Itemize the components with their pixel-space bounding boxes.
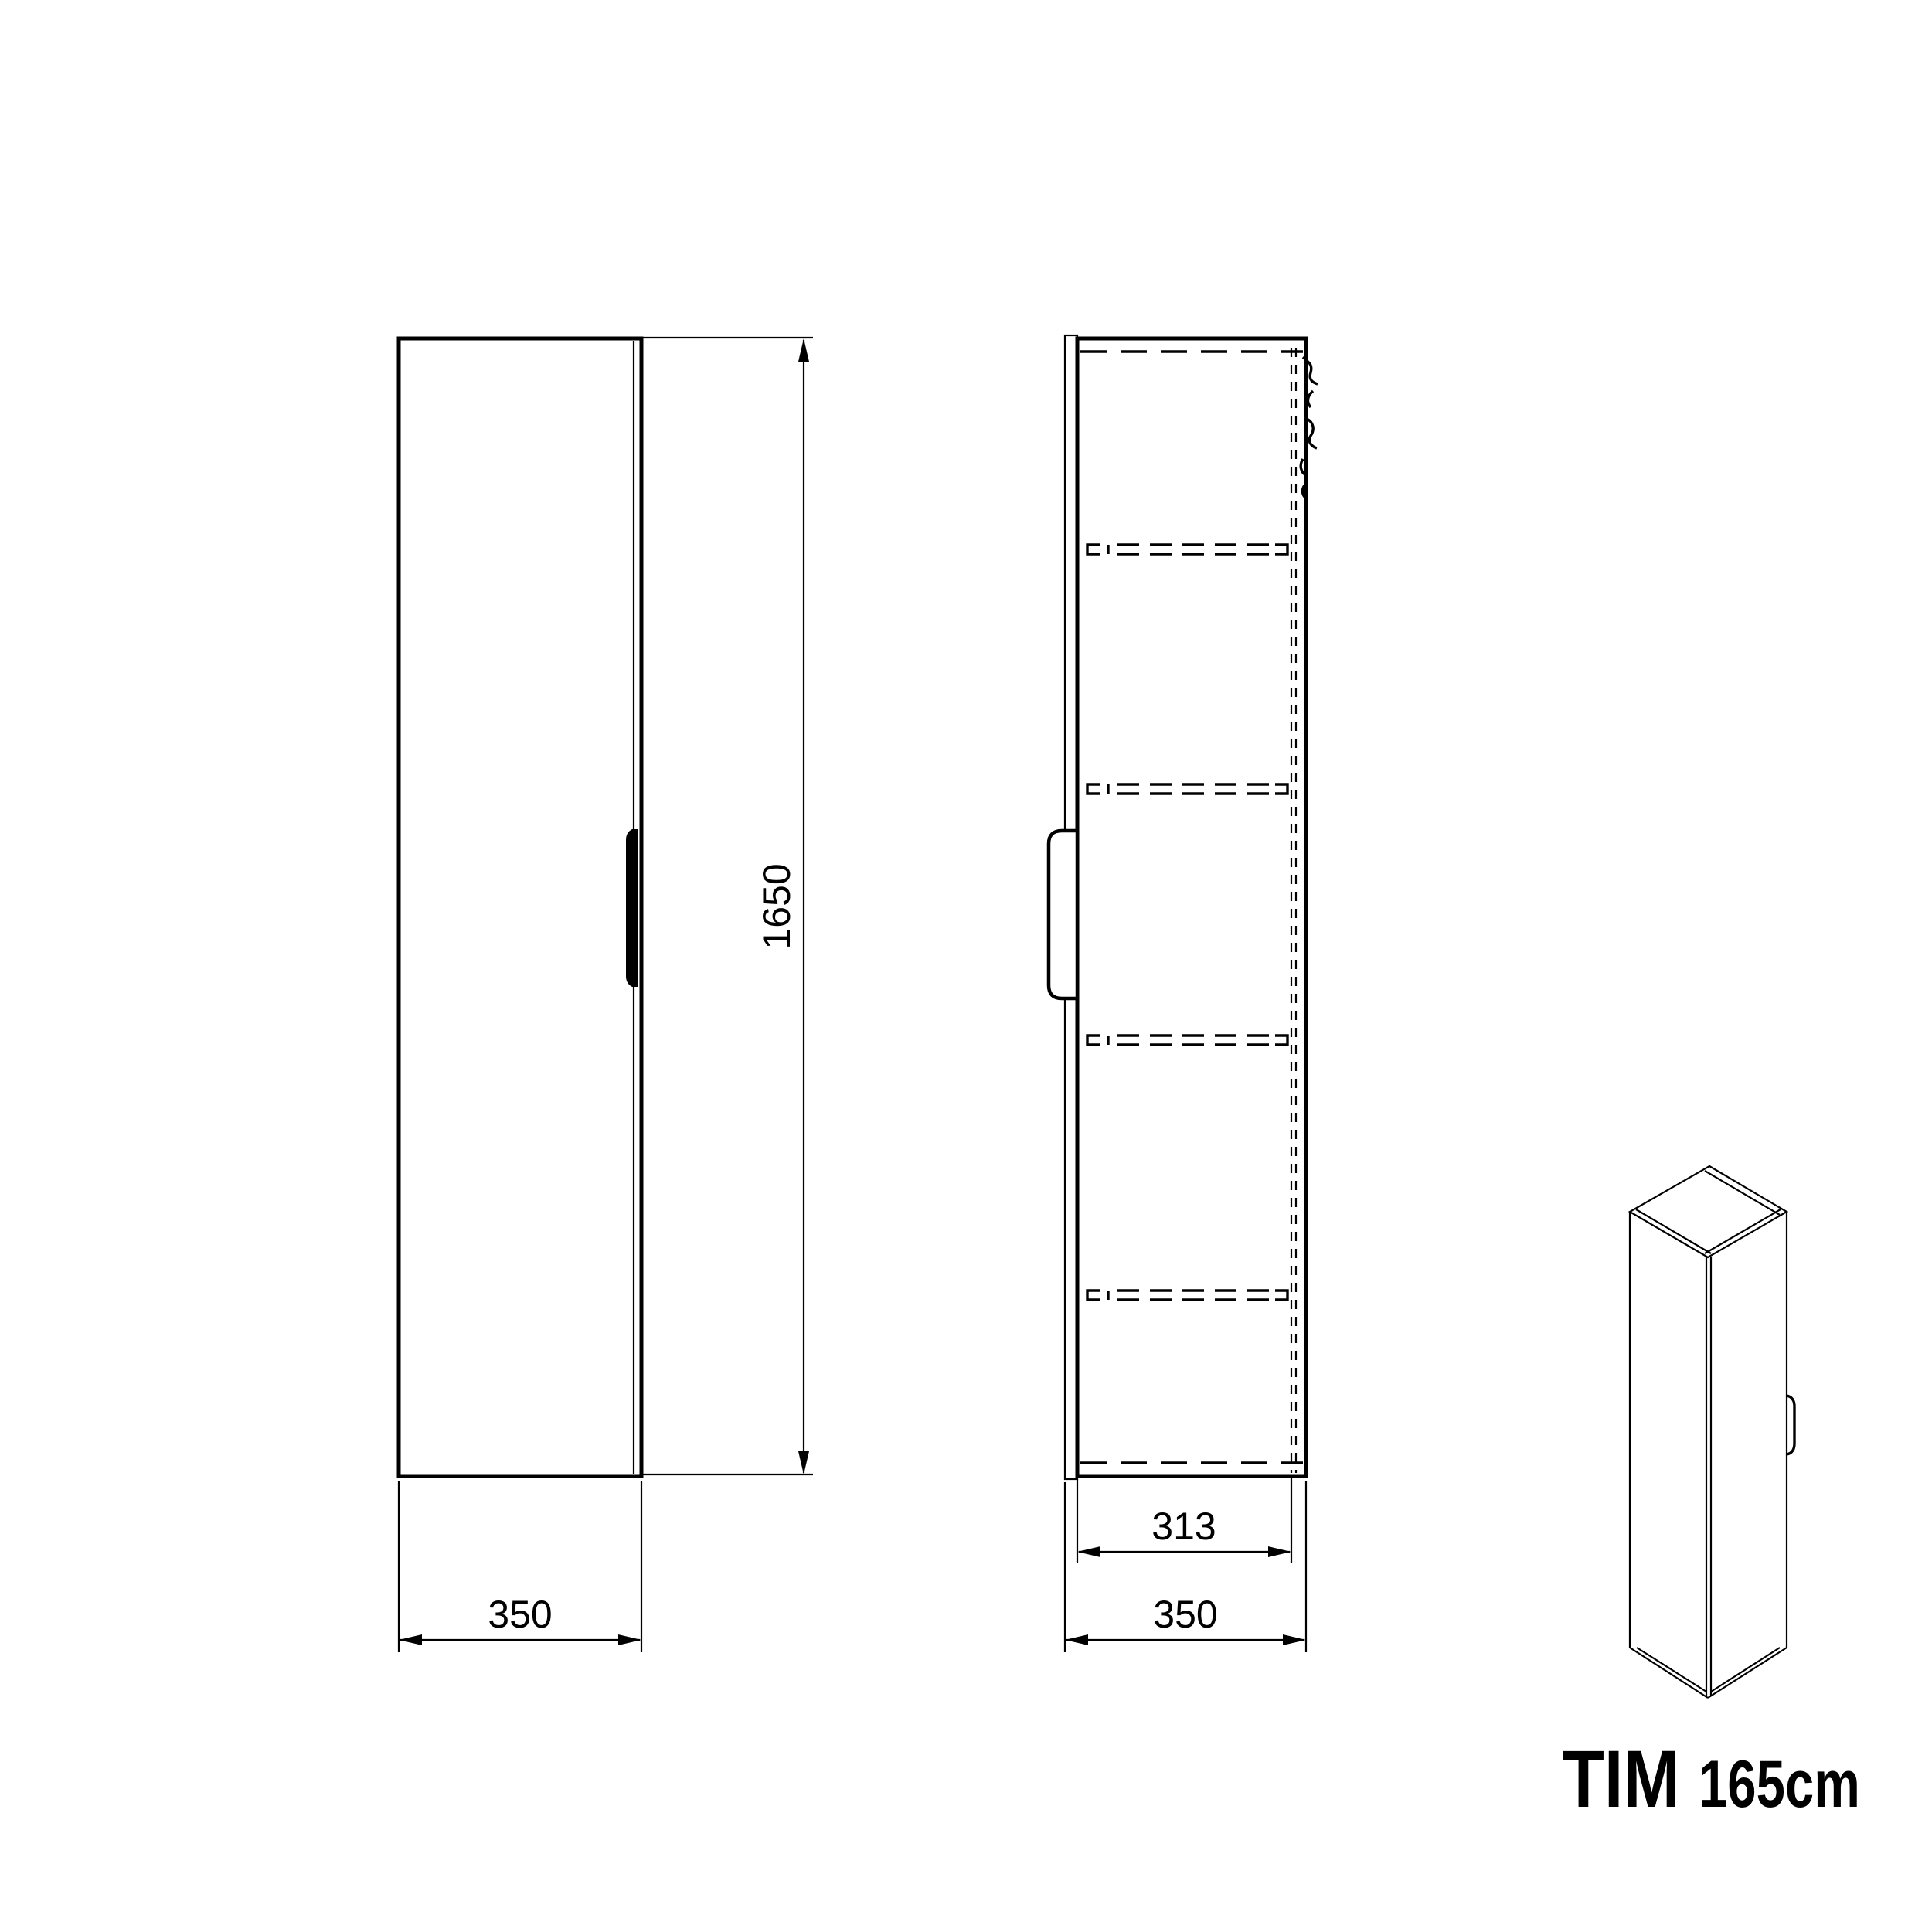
- iso-door-handle: [1787, 1396, 1794, 1454]
- inner-depth-label: 313: [1151, 1505, 1216, 1548]
- isometric-view: [1630, 1166, 1794, 1698]
- shelf4-left-bracket: [1087, 1291, 1100, 1300]
- shelf3-left-bracket: [1087, 1036, 1100, 1045]
- front-height-dimension: 1650: [643, 338, 813, 1475]
- iso-bottom-right-edge: [1708, 1648, 1787, 1698]
- arrow-up-icon: [798, 338, 809, 362]
- side-door-handle: [1049, 831, 1077, 998]
- iso-top-rim-front-left: [1636, 1209, 1711, 1253]
- shelf3-right-bracket: [1275, 1036, 1287, 1045]
- shelf-hidden-line-1: [1087, 545, 1287, 554]
- front-view: 1650 350: [399, 338, 813, 1652]
- side-cabinet-outline: [1077, 338, 1306, 1476]
- back-panel-hidden-line: [1291, 348, 1296, 1473]
- front-width-label: 350: [488, 1593, 552, 1636]
- arrow-right-icon: [1268, 1546, 1291, 1557]
- product-size-label: 165cm: [1699, 1747, 1860, 1821]
- front-width-dimension: 350: [399, 1481, 641, 1652]
- product-name-label: TIM: [1563, 1733, 1680, 1825]
- front-door-handle: [626, 829, 638, 987]
- side-view: 313 350: [1049, 335, 1318, 1652]
- arrow-left-icon: [1077, 1546, 1100, 1557]
- arrow-left-icon: [399, 1634, 422, 1645]
- shelf-hidden-line-2: [1087, 784, 1287, 794]
- iso-top-rim-back-right: [1705, 1171, 1780, 1215]
- front-cabinet-outline: [399, 338, 641, 1476]
- product-title: TIM 165cm: [1563, 1733, 1860, 1825]
- iso-bottom-left-edge: [1630, 1648, 1708, 1698]
- mounting-bracket-squiggle: [1301, 357, 1318, 498]
- arrow-left-icon: [1065, 1634, 1088, 1645]
- arrow-right-icon: [618, 1634, 641, 1645]
- arrow-down-icon: [798, 1451, 809, 1475]
- shelf-hidden-line-3: [1087, 1036, 1287, 1045]
- arrow-right-icon: [1283, 1634, 1306, 1645]
- shelf2-right-bracket: [1275, 784, 1287, 794]
- shelf2-left-bracket: [1087, 784, 1100, 794]
- iso-top-face: [1630, 1166, 1787, 1257]
- shelf4-right-bracket: [1275, 1291, 1287, 1300]
- iso-bottom-right-inner: [1711, 1648, 1780, 1692]
- iso-bottom-left-inner: [1637, 1648, 1706, 1692]
- shelf-hidden-line-4: [1087, 1291, 1287, 1300]
- technical-drawing-canvas: 1650 350: [0, 0, 1932, 1932]
- side-inner-depth-dimension: 313: [1077, 1476, 1291, 1563]
- iso-top-rim-front-right: [1705, 1209, 1781, 1253]
- shelf1-left-bracket: [1087, 545, 1100, 554]
- side-depth-label: 350: [1153, 1593, 1217, 1636]
- shelf1-right-bracket: [1275, 545, 1287, 554]
- height-dimension-label: 1650: [755, 863, 798, 949]
